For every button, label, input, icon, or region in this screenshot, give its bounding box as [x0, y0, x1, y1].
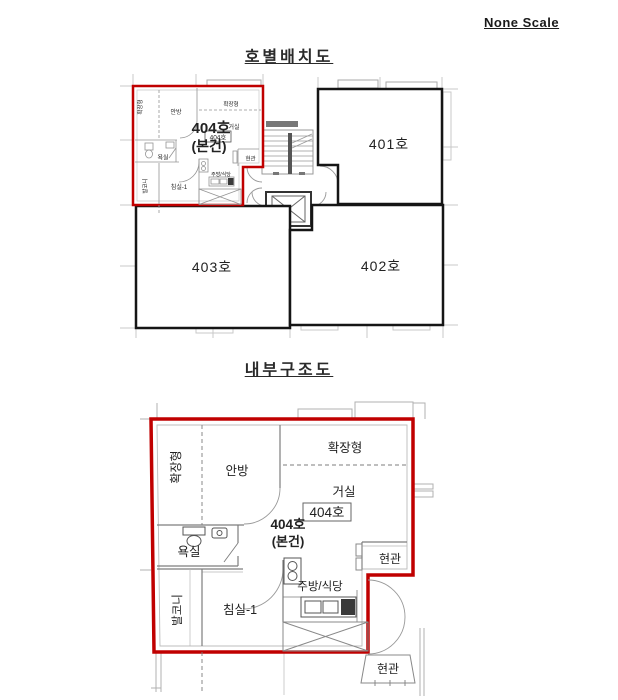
unit-plan-title: 호별배치도: [184, 43, 394, 67]
room-label-entrance: 현관: [379, 552, 401, 566]
room-label-bath: 욕실: [177, 545, 200, 559]
staircase: [262, 121, 313, 175]
unit-label-402: 402호: [361, 258, 401, 274]
room-label-master: 안방: [225, 464, 249, 478]
room-label-master: 안방: [170, 108, 182, 116]
room-label-kitchen: 주방/식당: [211, 171, 231, 178]
unit-label-401: 401호: [369, 136, 409, 152]
subject-unit-label: 404호: [271, 517, 307, 532]
room-label-neighbor-entrance: 현관: [377, 662, 399, 676]
interior-plan-drawing: 확장형 안방 확장형 거실 404호 욕실 현관 주방/식당 침실-1 발코니 …: [135, 395, 480, 700]
unit-plan-drawing: 401호 403호 402호: [115, 68, 475, 343]
room-label-bedroom1: 침실-1: [171, 183, 188, 191]
scale-note: None Scale: [484, 15, 584, 30]
interior-plan-title: 내부구조도: [184, 356, 394, 380]
room-label-extension-left: 확장형: [136, 99, 144, 114]
room-label-balcony: 발코니: [141, 178, 149, 193]
room-label-kitchen: 주방/식당: [297, 580, 343, 593]
room-label-extension-left: 확장형: [169, 450, 183, 483]
subject-unit-note: (본건): [272, 534, 305, 549]
floorplan-page: { "page": { "scale_note": "None Scale" }…: [0, 0, 618, 700]
interior-unit-box-label: 404호: [310, 505, 345, 520]
room-label-extension-top: 확장형: [223, 100, 238, 108]
room-label-extension-top: 확장형: [328, 441, 363, 455]
room-label-living: 거실: [332, 485, 355, 499]
subject-unit-label: 404호: [192, 120, 231, 137]
room-label-bath: 욕실: [157, 154, 168, 162]
room-label-balcony: 발코니: [171, 594, 184, 626]
subject-unit-note: (본건): [191, 138, 226, 154]
room-label-entrance: 현관: [245, 155, 255, 163]
room-label-bedroom1: 침실-1: [223, 603, 257, 617]
unit-label-403: 403호: [192, 259, 232, 275]
